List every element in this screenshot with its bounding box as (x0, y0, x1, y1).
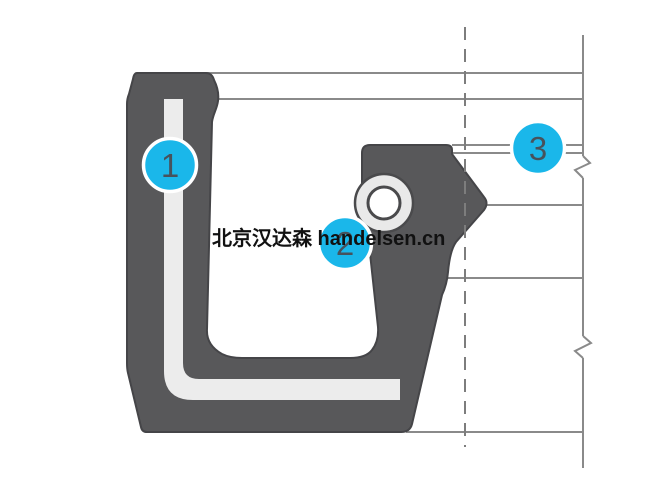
callout-1-label: 1 (161, 147, 179, 184)
garter-spring-inner (368, 187, 400, 219)
callout-3-label: 3 (529, 130, 547, 167)
break-symbol-lower (575, 336, 591, 358)
seal-diagram: 1 2 3 北京汉达森 handelsen.cn (0, 0, 655, 500)
callout-3-marker: 3 (512, 122, 565, 175)
watermark-text: 北京汉达森 handelsen.cn (212, 226, 445, 250)
callout-1-marker: 1 (144, 139, 197, 192)
diagram-canvas: 1 2 3 北京汉达森 handelsen.cn (0, 0, 655, 500)
break-symbol-upper (575, 156, 590, 178)
